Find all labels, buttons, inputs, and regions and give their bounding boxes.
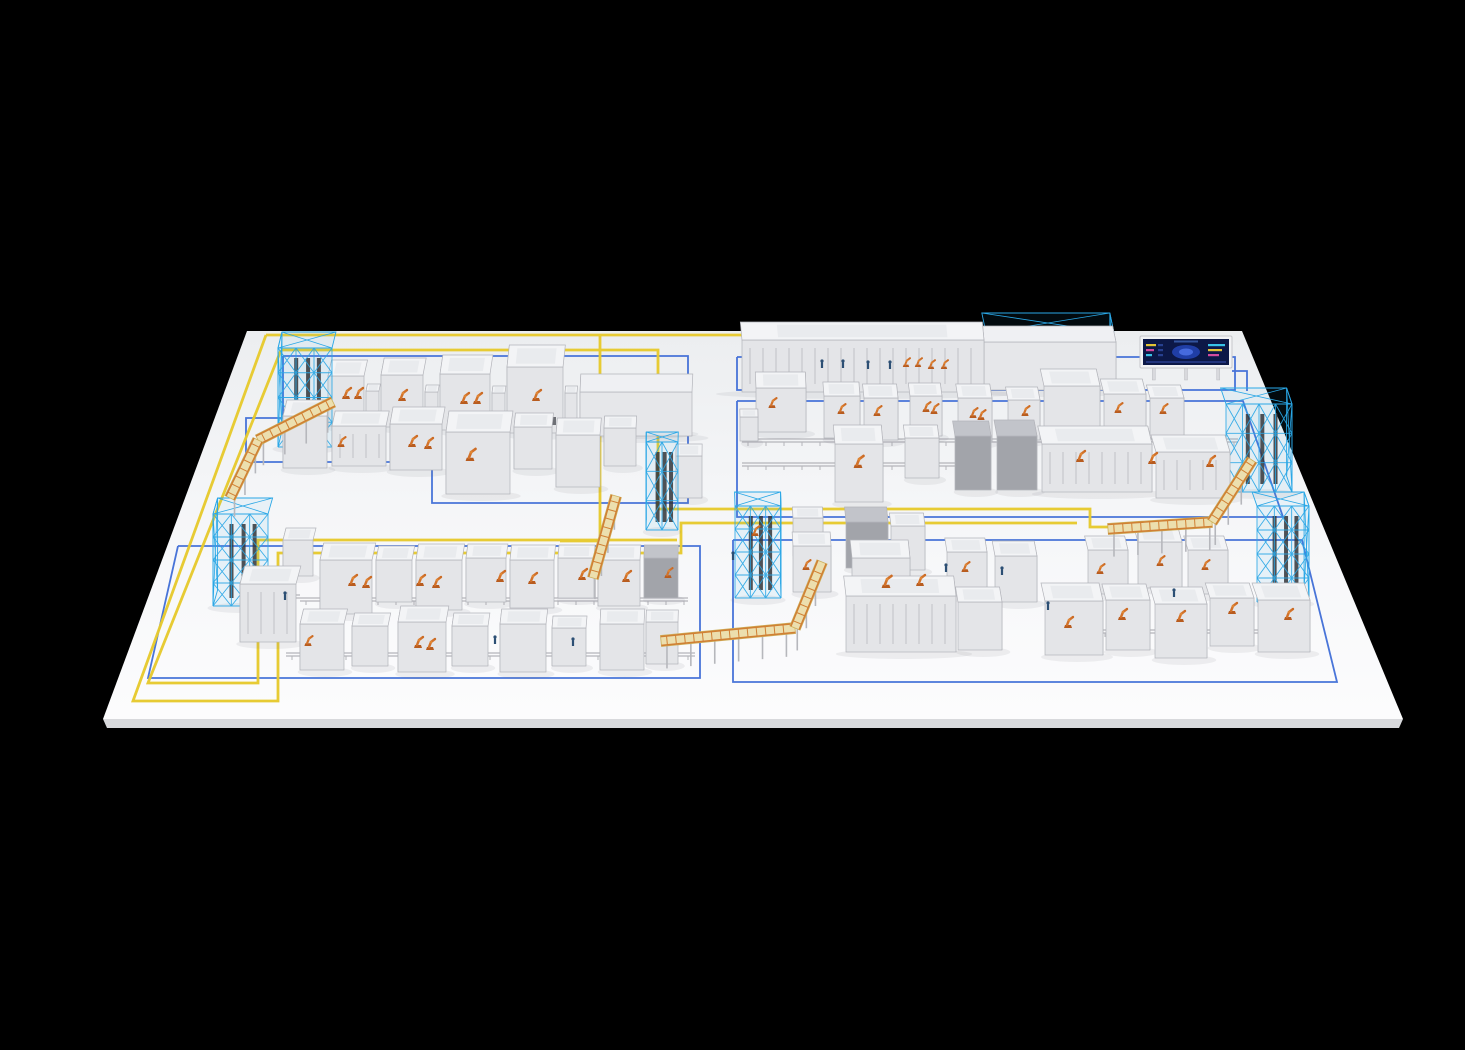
robot-end-effector [810,559,812,561]
factory-digital-twin-render [0,0,1465,1050]
machine-open-top-interior [1011,389,1035,398]
machine-open-top-interior [517,547,549,558]
worker-head [944,563,947,566]
machine-open-top-interior [1055,429,1135,442]
machine-block [329,411,396,473]
machine-front-face [500,624,546,672]
robot-end-effector [759,525,761,527]
robot-end-effector [345,436,347,438]
worker-head [1172,588,1175,591]
machine-open-top-interior [494,387,504,392]
robot-joint [965,564,967,566]
machine-open-top-interior [651,612,674,620]
machine-open-top-interior [1109,586,1143,597]
machine-front-face [1155,604,1207,658]
dashboard-left-bar-bg [1158,344,1163,346]
machine-front-face [905,438,939,478]
robot-end-effector [350,387,352,389]
robot-joint [308,638,310,640]
machine-block [497,609,554,679]
machine-open-top-interior [448,358,485,371]
robot-joint [582,571,585,574]
machine-front-face [1156,452,1230,498]
robot-joint [772,400,774,402]
dashboard-title-strip [1174,341,1198,343]
robot-end-effector [540,389,542,391]
robot-end-effector [1184,610,1186,612]
robot-end-effector [630,570,632,572]
machine-open-top-interior [427,386,437,391]
machine-open-top-interior [798,534,825,544]
machine-front-face [740,417,758,441]
robot-joint [352,577,355,580]
robot-end-effector [845,403,847,405]
machine-block [598,609,653,677]
robot-end-effector [909,357,911,359]
machine-front-face [398,622,446,672]
machine-front-face [1258,600,1310,652]
robot-joint [1080,453,1083,456]
worker-head [283,591,286,594]
robot-joint [402,392,405,395]
robot-joint [668,570,670,572]
machine-open-top-interior [557,618,582,626]
robot-end-effector [434,638,436,640]
dashboard-right-bar [1208,354,1219,356]
machine-open-top-interior [777,325,948,338]
robot-joint [464,395,467,398]
worker-head [866,360,869,363]
robot-end-effector [1126,608,1128,610]
machine-open-top-interior [913,385,937,394]
machine-front-face [676,456,702,498]
machine-open-top-interior [868,386,893,396]
dashboard-left-bar [1146,354,1152,356]
robot-joint [1232,605,1235,608]
machine-front-face [997,436,1037,490]
robot-joint [470,451,473,454]
robot-joint [877,408,879,410]
robot-joint [886,578,889,581]
robot-joint [1210,458,1213,461]
machine-open-top-interior [797,509,818,517]
robot-end-effector [432,437,434,439]
robot-end-effector [985,409,987,411]
conveyor-tie [1132,523,1133,531]
robot-end-effector [406,389,408,391]
machine-block [554,418,609,494]
robot-end-effector [672,567,674,569]
machine-open-top-interior [456,414,503,429]
machine-front-face [604,428,636,466]
robot-end-effector [468,392,470,394]
worker-head [1000,566,1003,569]
machine-open-top-interior [909,427,934,436]
robot-joint [1288,611,1291,614]
machine-block [836,576,972,659]
robot-end-effector [947,359,949,361]
rack-stored-items [663,452,667,522]
machine-open-top-interior [563,421,595,433]
robot-end-effector [422,636,424,638]
factory-floor-scene [0,0,1465,1050]
robot-end-effector [356,574,358,576]
robot-end-effector [416,435,418,437]
machine-open-top-interior [680,446,698,454]
robot-joint [931,362,933,364]
conveyor-tie [1159,522,1160,530]
machine-front-face [756,388,806,432]
machine-open-top-interior [763,374,798,385]
machine-open-top-interior [1049,372,1091,384]
conveyor-tie [1177,520,1178,528]
machine-open-top-interior [1159,590,1199,602]
machine-block [387,407,451,477]
dashboard-left-bar [1146,349,1154,351]
machine-top-face [953,421,991,436]
robot-end-effector [1084,450,1086,452]
machine-open-top-interior [1163,438,1218,450]
machine-open-top-interior [398,410,437,422]
robot-joint [358,390,361,393]
machine-open-top-interior [861,579,940,593]
robot-joint [1163,406,1165,408]
robot-end-effector [481,392,483,394]
machine-block [508,545,563,615]
machine-top-face [981,326,1116,342]
machine-front-face [558,558,594,598]
robot-joint [858,458,861,461]
rack-stored-items [1284,516,1288,594]
robot-joint [532,575,535,578]
robot-joint [1205,562,1207,564]
robot-end-effector [1122,402,1124,404]
machine-open-top-interior [567,387,576,392]
machine-open-top-interior [743,410,756,416]
worker-head [731,551,734,554]
machine-front-face [600,624,644,670]
machine-block [395,606,455,679]
machine-open-top-interior [307,611,340,622]
robot-end-effector [977,407,979,409]
machine-top-face [644,545,678,558]
robot-end-effector [890,575,892,577]
robot-end-effector [536,572,538,574]
machine-open-top-interior [564,547,590,556]
machine-front-face [556,435,600,487]
machine-block [298,609,353,677]
worker-head [1046,601,1049,604]
robot-joint [806,562,808,564]
robot-end-effector [924,574,926,576]
machine-open-top-interior [507,611,540,622]
machine-front-face [598,560,640,606]
machine-open-top-interior [334,362,362,373]
robot-end-effector [312,635,314,637]
robot-joint [346,390,349,393]
machine-open-top-interior [341,413,381,424]
machine-open-top-interior [962,589,995,600]
machine-open-top-interior [1091,538,1121,548]
machine-open-top-interior [609,418,632,426]
conveyor-tie [1186,520,1187,528]
conveyor-tie [1123,524,1124,532]
machine-front-face [376,560,412,602]
machine-open-top-interior [458,615,485,624]
conveyor-tie [1168,521,1169,529]
machine-front-face [1106,600,1150,650]
robot-joint [1025,408,1027,410]
machine-open-top-interior [841,428,876,441]
robot-end-effector [504,570,506,572]
robot-end-effector [862,455,864,457]
worker-head [820,359,823,362]
dashboard-leg [1152,368,1155,380]
robot-joint [420,577,423,580]
machine-top-face [994,420,1037,436]
machine-open-top-interior [388,361,420,373]
dashboard-billboard [1140,336,1232,380]
robot-end-effector [1029,405,1031,407]
robot-joint [1068,619,1071,622]
robot-joint [1100,566,1102,568]
machine-top-face [845,507,888,522]
machine-open-top-interior [607,611,638,622]
robot-end-effector [1164,555,1166,557]
machine-front-face [644,558,678,598]
robot-joint [906,360,908,362]
machine-front-face [955,436,991,490]
dashboard-right-bar [1208,349,1222,351]
conveyor-tie [1150,522,1151,530]
robot-joint [755,528,757,530]
robot-joint [1118,405,1120,407]
robot-joint [500,573,503,576]
robot-end-effector [1236,602,1238,604]
robot-joint [430,641,433,644]
dashboard-left-bar-bg [1158,354,1163,356]
robot-joint [436,579,439,582]
robot-joint [841,406,843,408]
machine-front-face [352,626,388,666]
conveyor-tie [1141,523,1142,531]
robot-end-effector [938,403,940,405]
conveyor-tie [1204,519,1205,527]
worker-head [571,637,574,640]
robot-joint [1152,455,1155,458]
storage-rack [730,492,785,605]
machine-open-top-interior [951,540,981,550]
machine-top-face [580,374,693,392]
robot-end-effector [921,357,923,359]
robot-end-effector [776,397,778,399]
machine-front-face [958,602,1002,650]
robot-joint [412,438,415,441]
robot-joint [926,404,928,406]
dashboard-leg [1185,368,1188,380]
robot-end-effector [969,561,971,563]
machine-front-face [995,556,1037,602]
robot-end-effector [1104,563,1106,565]
robot-joint [973,410,975,412]
machine-open-top-interior [961,386,986,396]
machine-front-face [1042,444,1152,492]
machine-open-top-interior [895,515,920,524]
machine-open-top-interior [520,415,548,425]
robot-joint [934,406,936,408]
robot-joint [477,395,480,398]
robot-end-effector [1214,455,1216,457]
worker-head [493,635,496,638]
machine-open-top-interior [516,348,557,363]
machine-open-top-interior [1050,586,1093,599]
robot-end-effector [1209,559,1211,561]
robot-joint [1180,613,1183,616]
machine-open-top-interior [406,608,442,619]
robot-end-effector [586,568,588,570]
robot-end-effector [1292,608,1294,610]
dashboard-left-bar [1146,344,1156,346]
machine-open-top-interior [358,615,385,624]
robot-end-effector [881,405,883,407]
dashboard-center-visual-core [1179,349,1193,356]
machine-block [753,372,815,439]
machine-open-top-interior [604,547,634,558]
dashboard-leg [1217,368,1220,380]
robot-joint [1122,611,1125,614]
robot-joint [536,392,539,395]
machine-front-face [446,432,510,494]
conveyor-tie [1114,525,1115,533]
machine-open-top-interior [249,569,292,582]
robot-end-effector [424,574,426,576]
robot-joint [944,362,946,364]
robot-end-effector [370,576,372,578]
machine-front-face [300,624,344,670]
conveyor-tie [1195,519,1196,527]
robot-end-effector [474,448,476,450]
robot-joint [428,440,431,443]
machine-open-top-interior [472,546,501,556]
machine-open-top-interior [999,543,1030,554]
machine-open-top-interior [1152,387,1178,396]
machine-open-top-interior [423,546,457,557]
robot-end-effector [440,576,442,578]
dashboard-right-bar [1208,344,1225,346]
machine-open-top-interior [1190,538,1221,548]
robot-joint [920,577,923,580]
machine-block [1032,426,1168,499]
machine-open-top-interior [859,543,901,556]
floor-slab-edge [103,719,1403,728]
machine-front-face [514,427,552,469]
robot-joint [366,579,369,582]
machine-open-top-interior [1213,585,1247,596]
dashboard-left-bar-bg [1158,349,1163,351]
machine-open-top-interior [368,385,378,390]
machine-block [441,411,520,501]
machine-front-face [552,628,586,666]
machine-open-top-interior [288,530,311,538]
robot-joint [341,439,343,441]
robot-end-effector [930,401,932,403]
robot-joint [918,360,920,362]
robot-end-effector [1072,616,1074,618]
machine-open-top-interior [328,546,367,558]
machine-front-face [1045,601,1103,655]
robot-joint [626,573,629,576]
robot-joint [418,639,421,642]
machine-open-top-interior [382,548,409,558]
machine-front-face [835,444,883,502]
machine-open-top-interior [1107,381,1139,392]
worker-head [841,359,844,362]
robot-end-effector [1167,403,1169,405]
storage-rack [643,432,681,537]
robot-end-effector [362,387,364,389]
machine-front-face [846,596,956,652]
robot-end-effector [934,359,936,361]
robot-end-effector [1156,452,1158,454]
machine-open-top-interior [828,384,854,394]
robot-joint [981,412,983,414]
robot-joint [1160,558,1162,560]
machine-block [236,566,305,649]
machine-front-face [452,626,488,666]
machine-open-top-interior [1261,586,1302,598]
worker-head [888,360,891,363]
machine-front-face [1044,386,1100,432]
